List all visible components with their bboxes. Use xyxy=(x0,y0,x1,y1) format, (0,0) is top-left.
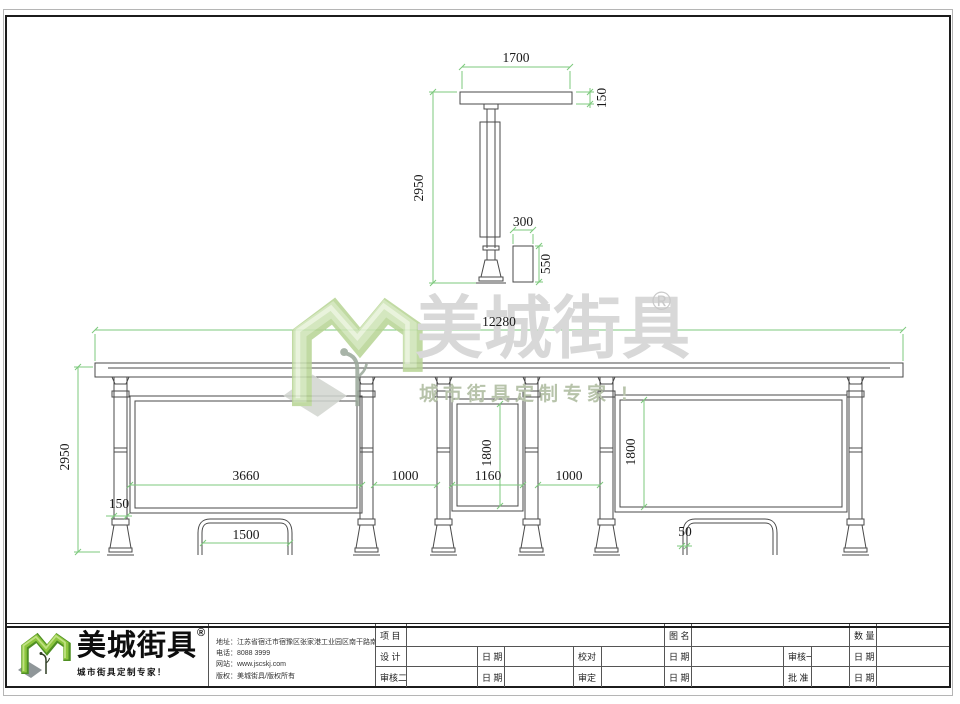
company-phone: 电话：8088 3999 xyxy=(216,648,373,659)
titleblock-label-project: 项 目 xyxy=(376,624,406,646)
titleblock-label-date-3: 日 期 xyxy=(849,646,876,666)
dim-side-bin-height: 550 xyxy=(538,254,553,275)
dim-middle-panel-height: 1800 xyxy=(479,439,494,466)
titleblock-value-date-1 xyxy=(504,646,573,666)
title-bar: 美城街具® 城市街具定制专家！ 地址：江苏省宿迁市宿豫区张家港工业园区南干路南侧… xyxy=(7,623,949,686)
dim-left-panel-width: 3660 xyxy=(233,468,260,483)
titleblock-label-proofread: 校对 xyxy=(573,646,601,666)
dim-gap-right: 1000 xyxy=(556,468,583,483)
titleblock-value-date-6 xyxy=(876,666,949,687)
company-address: 地址：江苏省宿迁市宿豫区张家港工业园区南干路南侧1号 xyxy=(216,637,373,648)
titleblock-value-proofread xyxy=(601,646,664,666)
titleblock-value-drawing-name xyxy=(691,624,849,646)
titleblock-label-quantity: 数 量 xyxy=(849,624,876,646)
dim-right-panel-height: 1800 xyxy=(623,438,638,465)
registered-mark: ® xyxy=(197,627,206,639)
titleblock-label-approve-check: 审定 xyxy=(573,666,601,687)
dimension-labels: 1700 150 2950 300 550 12280 2950 3660 10… xyxy=(0,0,960,704)
titleblock-label-drawing-name: 图 名 xyxy=(664,624,691,646)
titleblock-value-approval xyxy=(811,666,849,687)
dim-front-total-width: 12280 xyxy=(482,314,516,329)
titleblock-label-date-4: 日 期 xyxy=(477,666,504,687)
dim-bench-leg-width: 50 xyxy=(678,524,692,539)
titleblock-value-date-2 xyxy=(691,646,783,666)
company-website: 网站：www.jscskj.com xyxy=(216,659,373,670)
titleblock-value-date-4 xyxy=(504,666,573,687)
titleblock-label-reviewer-1: 审核一 xyxy=(783,646,811,666)
dim-side-height: 2950 xyxy=(411,174,426,201)
titleblock-value-reviewer-2 xyxy=(406,666,477,687)
dim-side-roof-thickness: 150 xyxy=(594,88,609,109)
titleblock-label-date-2: 日 期 xyxy=(664,646,691,666)
titleblock-value-date-3 xyxy=(876,646,949,666)
dim-gap-left: 1000 xyxy=(392,468,419,483)
titleblock-label-date-1: 日 期 xyxy=(477,646,504,666)
brand-m-icon xyxy=(18,628,73,682)
titleblock-value-reviewer-1 xyxy=(811,646,849,666)
titleblock-table: 项 目 图 名 数 量 设 计 日 期 校对 日 期 审核一 日 期 审核二 日… xyxy=(375,624,949,686)
titleblock-value-date-5 xyxy=(691,666,783,687)
dim-side-roof-width: 1700 xyxy=(503,50,530,65)
lamp-icon xyxy=(42,654,47,674)
brand-tagline: 城市街具定制专家！ xyxy=(77,666,206,678)
titleblock-value-quantity xyxy=(876,624,949,646)
titleblock-label-date-6: 日 期 xyxy=(849,666,876,687)
titleblock-value-approve-check xyxy=(601,666,664,687)
company-copyright: 版权：美城街具/版权所有 xyxy=(216,671,373,682)
dim-post-width: 150 xyxy=(109,496,130,511)
dim-middle-panel-width: 1160 xyxy=(475,468,502,483)
titleblock-label-approval: 批 准 xyxy=(783,666,811,687)
drawing-sheet: 美城街具 ® 城市街具定制专家 ! 1700 150 2950 300 550 … xyxy=(0,0,960,704)
company-logo: 美城街具® 城市街具定制专家！ xyxy=(7,624,208,686)
company-contact-block: 地址：江苏省宿迁市宿豫区张家港工业园区南干路南侧1号 电话：8088 3999 … xyxy=(208,624,375,686)
titleblock-label-reviewer-2: 审核二 xyxy=(376,666,406,687)
dim-side-bin-width: 300 xyxy=(513,214,534,229)
dim-front-height: 2950 xyxy=(57,443,72,470)
titleblock-label-design: 设 计 xyxy=(376,646,406,666)
dim-bench-width: 1500 xyxy=(233,527,260,542)
titleblock-label-date-5: 日 期 xyxy=(664,666,691,687)
titleblock-value-project xyxy=(406,624,664,646)
titleblock-value-design xyxy=(406,646,477,666)
brand-name: 美城街具® xyxy=(77,632,206,661)
